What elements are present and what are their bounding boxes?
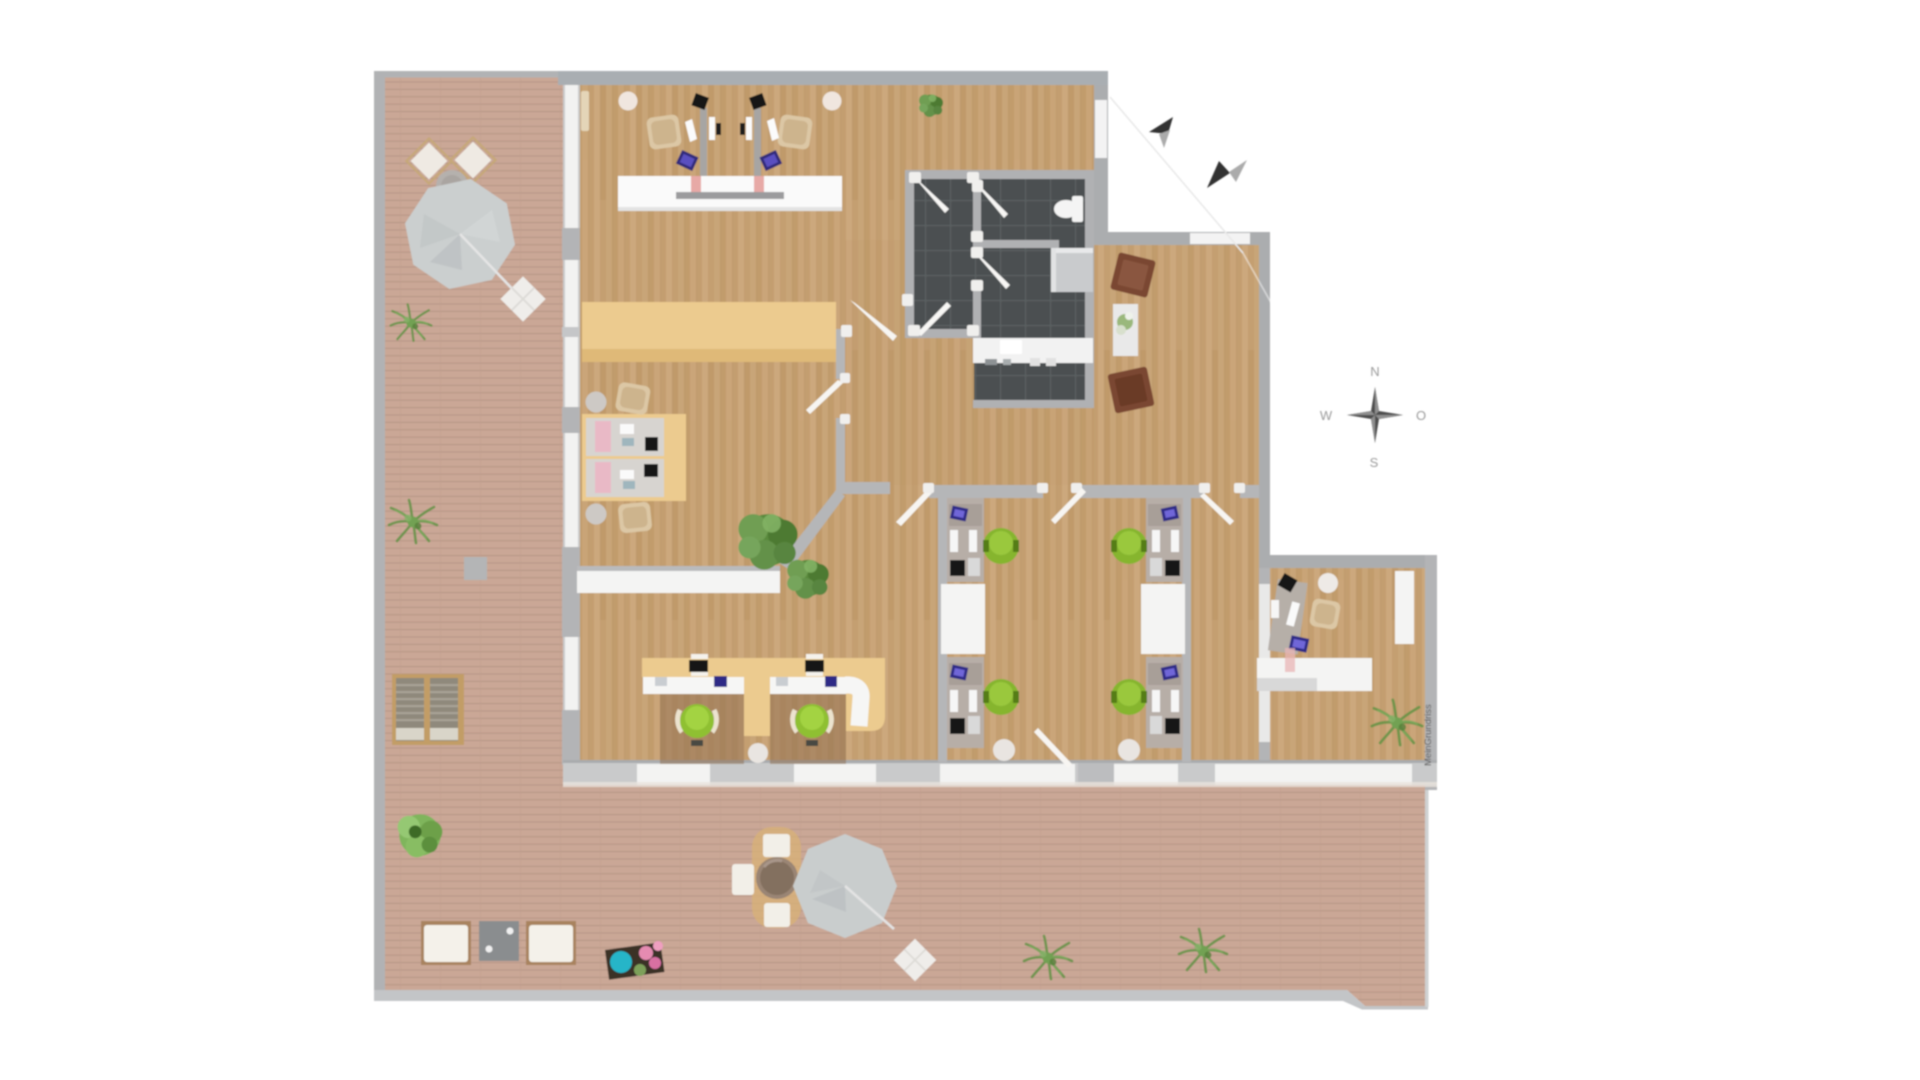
svg-text:S: S [1370, 455, 1379, 470]
svg-text:O: O [1416, 408, 1426, 423]
svg-text:W: W [1320, 408, 1333, 423]
svg-text:MeinGrundriss: MeinGrundriss [1423, 704, 1434, 766]
svg-text:N: N [1370, 364, 1379, 379]
